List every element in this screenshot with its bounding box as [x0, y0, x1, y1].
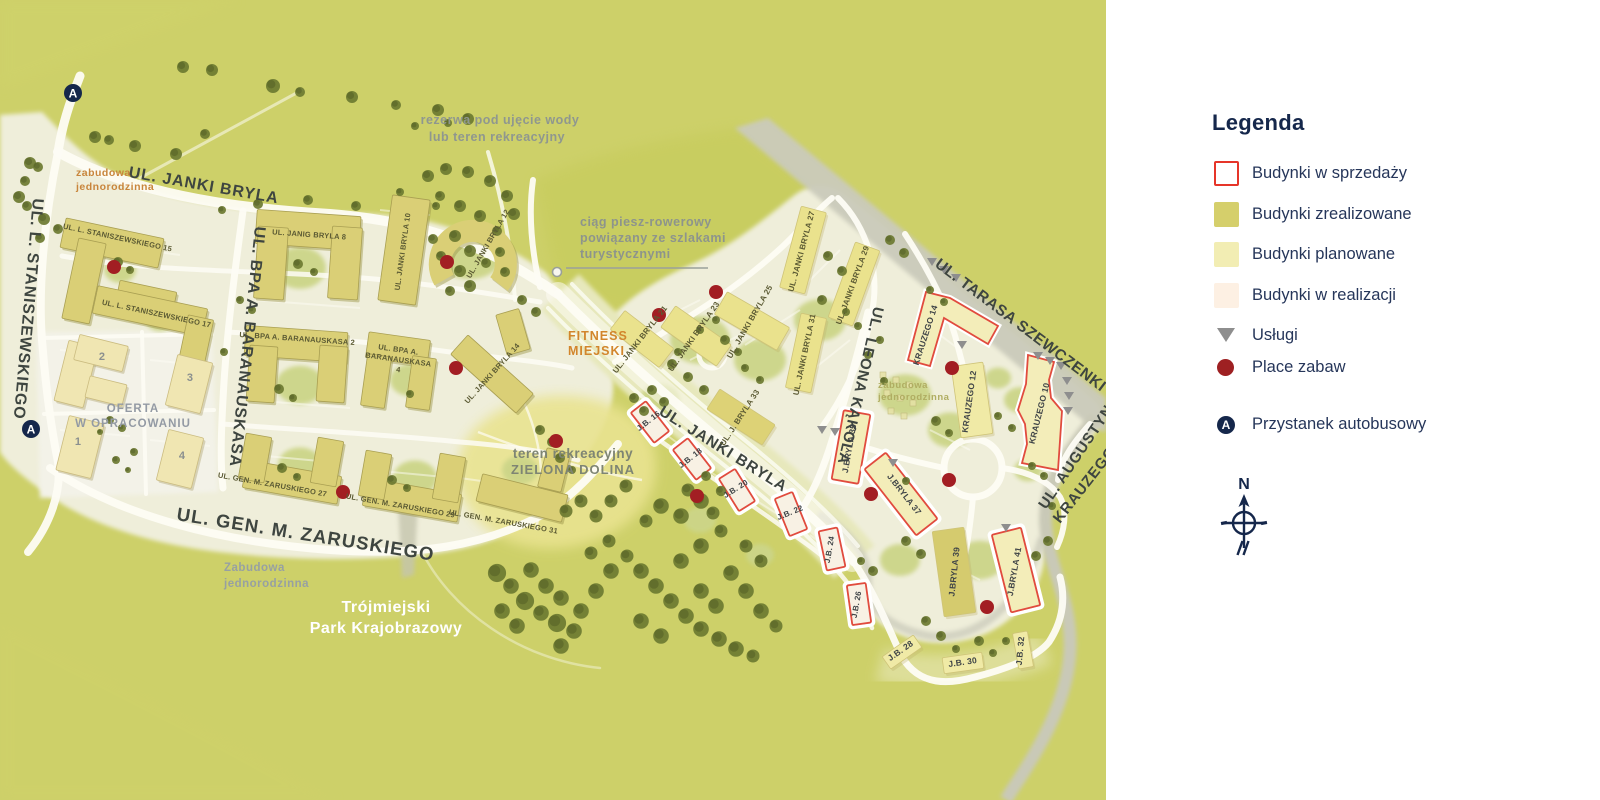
svg-text:3: 3 — [187, 372, 193, 384]
svg-text:lub teren rekreacyjny: lub teren rekreacyjny — [429, 130, 565, 144]
svg-text:1: 1 — [75, 436, 81, 448]
svg-text:OFERTA: OFERTA — [107, 403, 159, 415]
svg-text:A: A — [69, 87, 78, 101]
svg-text:zabudowa: zabudowa — [878, 380, 928, 391]
svg-text:powiązany ze szlakami: powiązany ze szlakami — [580, 231, 726, 245]
svg-text:W OPRACOWANIU: W OPRACOWANIU — [75, 418, 191, 430]
svg-text:2: 2 — [99, 351, 105, 363]
svg-text:Trójmiejski: Trójmiejski — [341, 599, 430, 616]
svg-text:jednorodzinna: jednorodzinna — [223, 578, 309, 590]
svg-text:ciąg piesz-rowerowy: ciąg piesz-rowerowy — [580, 215, 712, 229]
svg-text:Zabudowa: Zabudowa — [224, 562, 285, 574]
svg-text:FITNESS: FITNESS — [568, 329, 628, 343]
svg-text:4: 4 — [179, 450, 186, 462]
svg-text:N: N — [1238, 476, 1250, 493]
svg-text:zabudowa: zabudowa — [76, 167, 131, 179]
svg-text:ZIELONA DOLINA: ZIELONA DOLINA — [511, 462, 635, 477]
svg-text:Park Krajobrazowy: Park Krajobrazowy — [310, 620, 463, 637]
svg-text:teren rekreacyjny: teren rekreacyjny — [513, 446, 633, 461]
svg-text:rezerwa pod ujęcie wody: rezerwa pod ujęcie wody — [421, 113, 580, 127]
svg-text:jednorodzinna: jednorodzinna — [877, 392, 950, 403]
svg-text:turystycznymi: turystycznymi — [580, 247, 671, 261]
svg-text:A: A — [27, 423, 36, 437]
svg-text:MIEJSKI: MIEJSKI — [568, 344, 625, 358]
svg-text:jednorodzinna: jednorodzinna — [75, 181, 154, 193]
